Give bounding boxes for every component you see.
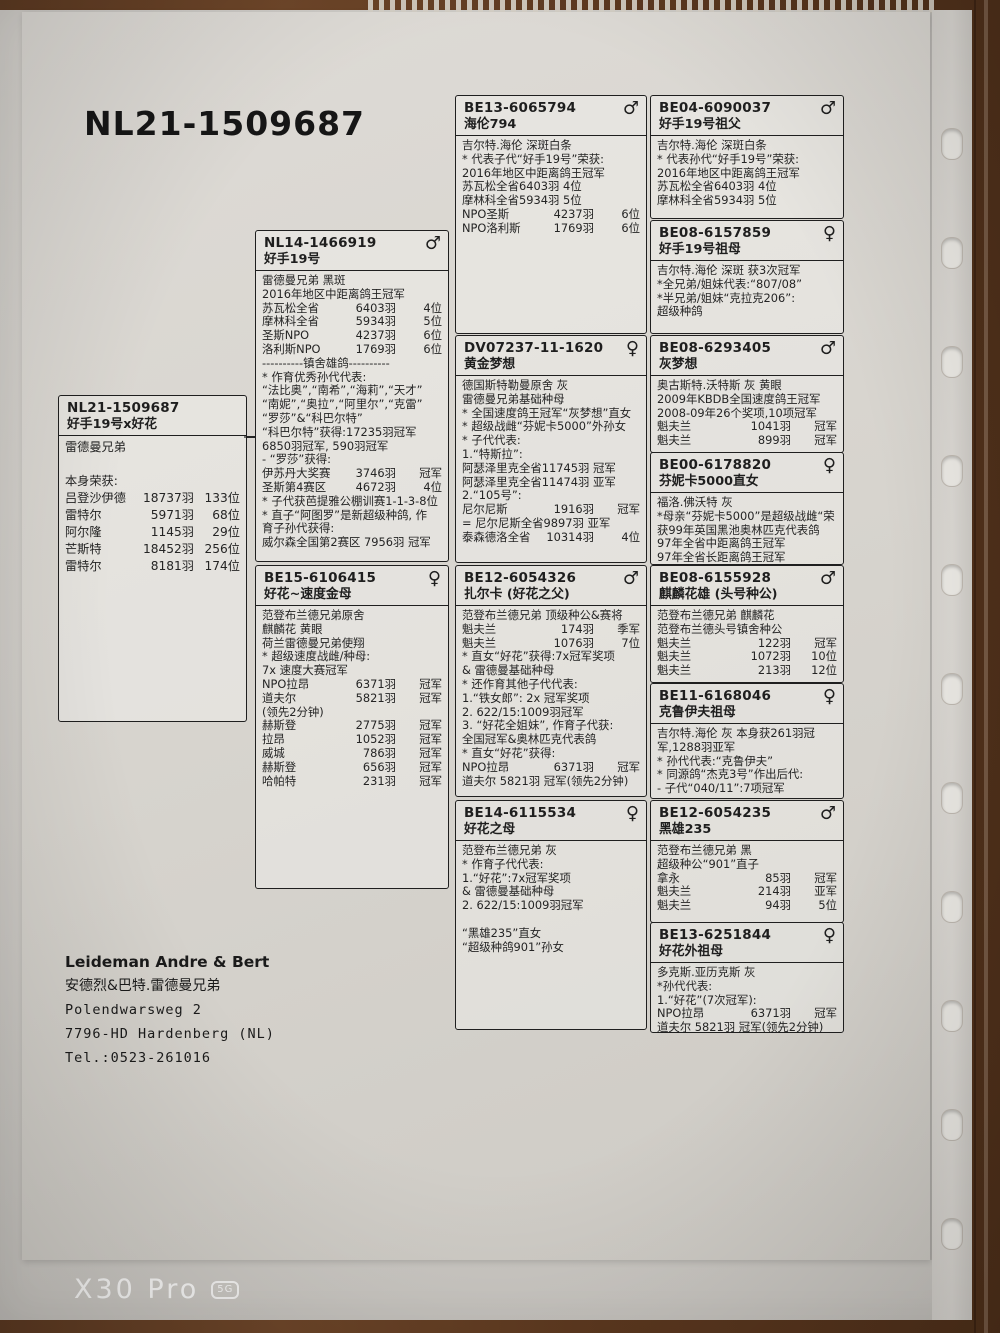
text-line: “黑雄235”直女 (462, 927, 640, 941)
text-line: 摩林科全省5934羽 5位 (462, 194, 640, 208)
birds-count: 1769羽 (336, 343, 396, 357)
male-icon: ♂ (820, 340, 836, 358)
ring-number: BE11-6168046 (659, 688, 835, 704)
placing: 6位 (396, 329, 442, 343)
ring-number: BE04-6090037 (659, 100, 835, 116)
text-line: 2016年地区中距离鸽王冠军 (262, 288, 442, 302)
result-row: 伊苏丹大奖赛3746羽冠军 (262, 467, 442, 481)
birds-count: 85羽 (731, 872, 791, 886)
result-row: 魁夫兰899羽冠军 (657, 434, 837, 448)
male-icon: ♂ (820, 805, 836, 823)
result-row: NPO拉昂6371羽冠军 (462, 761, 640, 775)
result-row: 魁夫兰1041羽冠军 (657, 420, 837, 434)
male-icon: ♂ (623, 100, 639, 118)
race-name: 拉昂 (262, 733, 336, 747)
birds-count: 6371羽 (731, 1007, 791, 1021)
birds-count: 4237羽 (534, 208, 594, 222)
result-row: 魁夫兰122羽冠军 (657, 637, 837, 651)
race-name: 伊苏丹大奖赛 (262, 467, 336, 481)
owner-city: 7796-HD Hardenberg (NL) (65, 1022, 275, 1046)
text-line: * 子代代表: (462, 434, 640, 448)
result-row: 赫斯登2775羽冠军 (262, 719, 442, 733)
text-line: 道夫尔 5821羽 冠军(领先2分钟) (657, 1021, 837, 1033)
pigeon-name: 好手19号 (264, 252, 440, 267)
ring-number: BE12-6054326 (464, 570, 638, 586)
text-line: 阿瑟泽里克全省11474羽 亚军 (462, 476, 640, 490)
text-line: 育子孙代获得: (262, 522, 442, 536)
placing: 冠军 (396, 467, 442, 481)
binder-hole (941, 128, 963, 160)
result-row: 道夫尔5821羽冠军 (262, 692, 442, 706)
result-row: 洛利斯NPO1769羽6位 (262, 343, 442, 357)
birds-count: 1916羽 (534, 503, 594, 517)
text-line: * 孙代代表:“克鲁伊夫” (657, 755, 837, 769)
text-line: 德国斯特勒曼原舍 灰 (462, 379, 640, 393)
ring-number: BE13-6251844 (659, 927, 835, 943)
box-body: 奥古斯特.沃特斯 灰 黄眼2009年KBDB全国速度鸽王冠军2008-09年26… (651, 376, 843, 450)
placing: 冠军 (791, 872, 837, 886)
text-line: 2016年地区中距离鸽王冠军 (462, 167, 640, 181)
result-row: 拉昂1052羽冠军 (262, 733, 442, 747)
placing: 冠军 (594, 761, 640, 775)
birds-count: 4672羽 (336, 481, 396, 495)
pigeon-name: 好手19号x好花 (67, 417, 238, 432)
owner-block: Leideman Andre & Bert 安德烈&巴特.雷德曼兄弟 Polen… (65, 950, 275, 1070)
birds-count: 10314羽 (534, 531, 594, 545)
race-name: 拿永 (657, 872, 731, 886)
text-line: *孙代代表: (657, 980, 837, 994)
text-line: 97年全省长距离鸽王冠军 (657, 551, 837, 565)
text-line: 3. “好花全姐妹”, 作育子代获: (462, 719, 640, 733)
text-line: 吉尔特.海伦 深斑 获3次冠军 (657, 264, 837, 278)
pedigree-box-BE12-6054235: BE12-6054235黑雄235♂范登布兰德兄弟 黑超级种公“901”直子拿永… (650, 800, 844, 923)
birds-count: 174羽 (534, 623, 594, 637)
text-line: 2008-09年26个奖项,10项冠军 (657, 407, 837, 421)
birds-count: 3746羽 (336, 467, 396, 481)
result-row: 魁夫兰214羽亚军 (657, 885, 837, 899)
race-name: 魁夫兰 (657, 434, 731, 448)
placing: 冠军 (396, 733, 442, 747)
placing: 亚军 (791, 885, 837, 899)
text-line: - “罗莎”获得: (262, 453, 442, 467)
text-line: 范登布兰德头号镇舍种公 (657, 623, 837, 637)
race-name: 芒斯特 (65, 541, 134, 558)
race-name: 赫斯登 (262, 719, 336, 733)
pigeon-name: 扎尔卡 (好花之父) (464, 587, 638, 602)
box-body: 福洛.佛沃特 灰*母亲“芬妮卡5000”是超级战雌“荣获99年英国黑池奥林匹克代… (651, 493, 843, 565)
result-row: NPO拉昂6371羽冠军 (262, 678, 442, 692)
race-name: 圣斯第4赛区 (262, 481, 336, 495)
sleeve-edge-highlight (984, 0, 988, 1333)
text-line (462, 913, 640, 927)
text-line: * 还作育其他子代代表: (462, 678, 640, 692)
text-line: 超级种鸽 (657, 305, 837, 319)
pigeon-name: 黑雄235 (659, 822, 835, 837)
box-body: 雷德曼兄弟 黑斑2016年地区中距离鸽王冠军苏瓦松全省6403羽4位摩林科全省5… (256, 271, 448, 552)
placing: 季军 (594, 623, 640, 637)
placing: 冠军 (791, 420, 837, 434)
text-line: 1.“特斯拉”: (462, 448, 640, 462)
birds-count: 5821羽 (336, 692, 396, 706)
birds-count: 4237羽 (336, 329, 396, 343)
box-body: 范登布兰德兄弟 顶级种公&赛将魁夫兰174羽季军魁夫兰1076羽7位* 直女“好… (456, 606, 646, 790)
placing: 7位 (594, 637, 640, 651)
sleeve-edge-groove (974, 0, 976, 1333)
pigeon-name: 好花外祖母 (659, 944, 835, 959)
text-line: = 尼尔尼斯全省9897羽 亚军 (462, 517, 640, 531)
birds-count: 213羽 (731, 664, 791, 678)
race-name: 魁夫兰 (657, 664, 731, 678)
birds-count: 1076羽 (534, 637, 594, 651)
text-line: 道夫尔 5821羽 冠军(领先2分钟) (462, 775, 640, 789)
box-body: 吉尔特.海伦 深斑白条* 代表子代“好手19号”荣获:2016年地区中距离鸽王冠… (456, 136, 646, 238)
text-line: 1.“好花”:7x冠军奖项 (462, 872, 640, 886)
placing: 冠军 (791, 1007, 837, 1021)
text-line: 雷德曼兄弟 (65, 439, 240, 456)
placing: 5位 (791, 899, 837, 913)
text-line: 范登布兰德兄弟 黑 (657, 844, 837, 858)
ring-number: BE15-6106415 (264, 570, 440, 586)
text-line: & 雷德曼基础种母 (462, 885, 640, 899)
result-row: NPO洛利斯1769羽6位 (462, 222, 640, 236)
placing: 冠军 (396, 747, 442, 761)
pedigree-box-BE12-6054326: BE12-6054326扎尔卡 (好花之父)♂范登布兰德兄弟 顶级种公&赛将魁夫… (455, 565, 647, 797)
text-line: 阿瑟泽里克全省11745羽 冠军 (462, 462, 640, 476)
text-line: *半兄弟/姐妹“克拉克206”: (657, 292, 837, 306)
text-line: 雷德曼兄弟基础种母 (462, 393, 640, 407)
pedigree-box-DV07237-11-1620: DV07237-11-1620黄金梦想♀德国斯特勒曼原舍 灰雷德曼兄弟基础种母*… (455, 335, 647, 563)
text-line: * 超级战雌“芬妮卡5000”外孙女 (462, 420, 640, 434)
text-line: “罗莎”&“科巴尔特” (262, 412, 442, 426)
text-line: “南妮”,“奥拉”,“阿里尔”,“克雷” (262, 398, 442, 412)
text-line: * 代表孙代“好手19号”荣获: (657, 153, 837, 167)
pedigree-box-NL14-1466919: NL14-1466919好手19号♂雷德曼兄弟 黑斑2016年地区中距离鸽王冠军… (255, 230, 449, 562)
placing: 4位 (594, 531, 640, 545)
ring-number: BE08-6293405 (659, 340, 835, 356)
result-row: 苏瓦松全省6403羽4位 (262, 302, 442, 316)
placing: 256位 (194, 541, 240, 558)
result-row: NPO圣斯4237羽6位 (462, 208, 640, 222)
text-line: 吉尔特.海伦 深斑白条 (462, 139, 640, 153)
ring-number: BE08-6157859 (659, 225, 835, 241)
placing: 6位 (396, 343, 442, 357)
race-name: 赫斯登 (262, 761, 336, 775)
box-body: 范登布兰德兄弟 黑超级种公“901”直子拿永85羽冠军魁夫兰214羽亚军魁夫兰9… (651, 841, 843, 915)
placing: 4位 (396, 481, 442, 495)
result-row: 魁夫兰1076羽7位 (462, 637, 640, 651)
female-icon: ♀ (823, 225, 836, 243)
text-line: 全国冠军&奥林匹克代表鸽 (462, 733, 640, 747)
pigeon-name: 好花之母 (464, 822, 638, 837)
result-row: 雷特尔8181羽174位 (65, 558, 240, 575)
race-name: 阿尔隆 (65, 524, 134, 541)
box-header: NL21-1509687好手19号x好花 (59, 396, 246, 436)
text-line: * 超级速度战雌/种母: (262, 650, 442, 664)
race-name: NPO洛利斯 (462, 222, 534, 236)
race-name: 洛利斯NPO (262, 343, 336, 357)
box-header: BE08-6157859好手19号祖母♀ (651, 221, 843, 261)
female-icon: ♀ (626, 340, 639, 358)
birds-count: 18452羽 (134, 541, 194, 558)
placing: 6位 (594, 208, 640, 222)
result-row: 吕登沙伊德18737羽133位 (65, 490, 240, 507)
text-line: * 同源鸽“杰克3号”作出后代: (657, 768, 837, 782)
placing: 冠军 (594, 503, 640, 517)
text-line: 奥古斯特.沃特斯 灰 黄眼 (657, 379, 837, 393)
pedigree-box-BE04-6090037: BE04-6090037好手19号祖父♂吉尔特.海伦 深斑白条* 代表孙代“好手… (650, 95, 844, 219)
ring-number: NL21-1509687 (67, 400, 238, 416)
race-name: 道夫尔 (262, 692, 336, 706)
text-line: * 子代获芭提雅公棚训赛1-1-3-8位 (262, 495, 442, 509)
placing: 冠军 (791, 434, 837, 448)
ring-number: BE12-6054235 (659, 805, 835, 821)
box-header: BE00-6178820芬妮卡5000直女♀ (651, 453, 843, 493)
text-line: 本身荣获: (65, 473, 240, 490)
male-icon: ♂ (820, 100, 836, 118)
box-header: BE11-6168046克鲁伊夫祖母♀ (651, 684, 843, 724)
box-body: 吉尔特.海伦 深斑白条* 代表孙代“好手19号”荣获:2016年地区中距离鸽王冠… (651, 136, 843, 210)
pedigree-box-BE08-6293405: BE08-6293405灰梦想♂奥古斯特.沃特斯 灰 黄眼2009年KBDB全国… (650, 335, 844, 453)
box-header: BE08-6155928麒麟花雄 (头号种公)♂ (651, 566, 843, 606)
result-row: 魁夫兰1072羽10位 (657, 650, 837, 664)
box-body: 范登布兰德兄弟 麒麟花范登布兰德头号镇舍种公魁夫兰122羽冠军魁夫兰1072羽1… (651, 606, 843, 680)
text-line: 2016年地区中距离鸽王冠军 (657, 167, 837, 181)
pigeon-name: 灰梦想 (659, 357, 835, 372)
placing: 冠军 (396, 678, 442, 692)
text-line: (领先2分钟) (262, 706, 442, 720)
box-header: BE13-6065794海伦794♂ (456, 96, 646, 136)
box-body: 雷德曼兄弟 本身荣获:吕登沙伊德18737羽133位雷特尔5971羽68位阿尔隆… (59, 436, 246, 577)
birds-count: 1041羽 (731, 420, 791, 434)
text-line: * 作育子代代表: (462, 858, 640, 872)
male-icon: ♂ (820, 570, 836, 588)
result-row: 摩林科全省5934羽5位 (262, 315, 442, 329)
paper: NL21-1509687 Leideman Andre & Bert 安德烈&巴… (22, 12, 930, 1260)
text-line: 范登布兰德兄弟 顶级种公&赛将 (462, 609, 640, 623)
punch-strip (932, 10, 972, 1320)
ring-number: NL14-1466919 (264, 235, 440, 251)
birds-count: 2775羽 (336, 719, 396, 733)
pedigree-box-BE08-6157859: BE08-6157859好手19号祖母♀吉尔特.海伦 深斑 获3次冠军*全兄弟/… (650, 220, 844, 334)
female-icon: ♀ (626, 805, 639, 823)
box-body: 吉尔特.海伦 灰 本身获261羽冠军,1288羽亚军* 孙代代表:“克鲁伊夫”*… (651, 724, 843, 798)
birds-count: 94羽 (731, 899, 791, 913)
ring-number: DV07237-11-1620 (464, 340, 638, 356)
result-row: 尼尔尼斯1916羽冠军 (462, 503, 640, 517)
result-row: 威城786羽冠军 (262, 747, 442, 761)
result-row: 圣斯第4赛区4672羽4位 (262, 481, 442, 495)
race-name: 尼尔尼斯 (462, 503, 534, 517)
text-line (65, 456, 240, 473)
birds-count: 122羽 (731, 637, 791, 651)
text-line: ----------镇舍雄鸽---------- (262, 357, 442, 371)
male-icon: ♂ (425, 235, 441, 253)
text-line: 97年全省中距离鸽王冠军 (657, 537, 837, 551)
text-line: “超级种鸽901”孙女 (462, 941, 640, 955)
result-row: 拿永85羽冠军 (657, 872, 837, 886)
pigeon-name: 克鲁伊夫祖母 (659, 705, 835, 720)
result-row: 雷特尔5971羽68位 (65, 507, 240, 524)
female-icon: ♀ (823, 927, 836, 945)
text-line: 摩林科全省5934羽 5位 (657, 194, 837, 208)
race-name: 魁夫兰 (657, 637, 731, 651)
race-name: 魁夫兰 (657, 899, 731, 913)
race-name: NPO圣斯 (462, 208, 534, 222)
birds-count: 6403羽 (336, 302, 396, 316)
text-line: 麒麟花 黄眼 (262, 623, 442, 637)
binder-hole (941, 237, 963, 269)
race-name: NPO拉昂 (262, 678, 336, 692)
binder-hole (941, 1109, 963, 1141)
placing: 133位 (194, 490, 240, 507)
race-name: 魁夫兰 (462, 623, 534, 637)
box-body: 范登布兰德兄弟原舍麒麟花 黄眼荷兰雷德曼兄弟使翔* 超级速度战雌/种母:7x 速… (256, 606, 448, 790)
race-name: 哈帕特 (262, 775, 336, 789)
race-name: 吕登沙伊德 (65, 490, 134, 507)
text-line: 获99年英国黑池奥林匹克代表鸽 (657, 524, 837, 538)
watermark-model: X30 Pro (74, 1274, 199, 1305)
placing: 29位 (194, 524, 240, 541)
ring-number: BE00-6178820 (659, 457, 835, 473)
pigeon-name: 芬妮卡5000直女 (659, 474, 835, 489)
text-line: 1.“好花”(7次冠军): (657, 994, 837, 1008)
text-line: 2009年KBDB全国速度鸽王冠军 (657, 393, 837, 407)
placing: 冠军 (396, 775, 442, 789)
pedigree-box-BE14-6115534: BE14-6115534好花之母♀范登布兰德兄弟 灰* 作育子代代表:1.“好花… (455, 800, 647, 1030)
box-header: BE12-6054235黑雄235♂ (651, 801, 843, 841)
text-line: 2.“105号”: (462, 489, 640, 503)
birds-count: 5934羽 (336, 315, 396, 329)
box-body: 德国斯特勒曼原舍 灰雷德曼兄弟基础种母* 全国速度鸽王冠军“灰梦想”直女* 超级… (456, 376, 646, 547)
pigeon-name: 黄金梦想 (464, 357, 638, 372)
pigeon-name: 好手19号祖父 (659, 117, 835, 132)
race-name: 雷特尔 (65, 507, 134, 524)
ring-number: BE13-6065794 (464, 100, 638, 116)
text-line: 荷兰雷德曼兄弟使翔 (262, 637, 442, 651)
result-row: 魁夫兰174羽季军 (462, 623, 640, 637)
pedigree-box-BE00-6178820: BE00-6178820芬妮卡5000直女♀福洛.佛沃特 灰*母亲“芬妮卡500… (650, 452, 844, 565)
binder-hole (941, 564, 963, 596)
pigeon-name: 好手19号祖母 (659, 242, 835, 257)
binder-hole (941, 673, 963, 705)
text-line: * 代表子代“好手19号”荣获: (462, 153, 640, 167)
pedigree-box-NL21-1509687: NL21-1509687好手19号x好花雷德曼兄弟 本身荣获:吕登沙伊德1873… (58, 395, 247, 722)
box-header: BE14-6115534好花之母♀ (456, 801, 646, 841)
text-line: 雷德曼兄弟 黑斑 (262, 274, 442, 288)
text-line: * 直女“好花”获得:7x冠军奖项 (462, 650, 640, 664)
female-icon: ♀ (823, 688, 836, 706)
pigeon-name: 好花~速度金母 (264, 587, 440, 602)
text-line: 苏瓦松全省6403羽 4位 (657, 180, 837, 194)
placing: 冠军 (791, 637, 837, 651)
binder-hole (941, 1000, 963, 1032)
race-name: NPO拉昂 (657, 1007, 731, 1021)
placing: 冠军 (396, 692, 442, 706)
birds-count: 18737羽 (134, 490, 194, 507)
binder-hole (941, 782, 963, 814)
placing: 冠军 (396, 719, 442, 733)
pedigree-box-BE08-6155928: BE08-6155928麒麟花雄 (头号种公)♂范登布兰德兄弟 麒麟花范登布兰德… (650, 565, 844, 683)
text-line: 苏瓦松全省6403羽 4位 (462, 180, 640, 194)
box-header: BE08-6293405灰梦想♂ (651, 336, 843, 376)
race-name: 魁夫兰 (657, 650, 731, 664)
result-row: 阿尔隆1145羽29位 (65, 524, 240, 541)
result-row: 魁夫兰213羽12位 (657, 664, 837, 678)
page-title: NL21-1509687 (84, 104, 365, 143)
pedigree-box-BE11-6168046: BE11-6168046克鲁伊夫祖母♀吉尔特.海伦 灰 本身获261羽冠军,12… (650, 683, 844, 799)
box-header: NL14-1466919好手19号♂ (256, 231, 448, 271)
owner-tel: Tel.:0523-261016 (65, 1046, 275, 1070)
birds-count: 6371羽 (534, 761, 594, 775)
text-line: * 直子“阿图罗”是新超级种鸽, 作 (262, 509, 442, 523)
pedigree-box-BE13-6065794: BE13-6065794海伦794♂吉尔特.海伦 深斑白条* 代表子代“好手19… (455, 95, 647, 334)
text-line: 6850羽冠军, 590羽冠军 (262, 440, 442, 454)
pedigree-box-BE15-6106415: BE15-6106415好花~速度金母♀范登布兰德兄弟原舍麒麟花 黄眼荷兰雷德曼… (255, 565, 449, 889)
binder-hole (941, 455, 963, 487)
text-line: 威尔森全国第2赛区 7956羽 冠军 (262, 536, 442, 550)
text-line: 超级种公“901”直子 (657, 858, 837, 872)
pigeon-name: 麒麟花雄 (头号种公) (659, 587, 835, 602)
placing: 6位 (594, 222, 640, 236)
placing: 冠军 (396, 761, 442, 775)
placing: 4位 (396, 302, 442, 316)
birds-count: 1052羽 (336, 733, 396, 747)
birds-count: 1769羽 (534, 222, 594, 236)
box-header: BE13-6251844好花外祖母♀ (651, 923, 843, 963)
box-body: 吉尔特.海伦 深斑 获3次冠军*全兄弟/姐妹代表:“807/08”*半兄弟/姐妹… (651, 261, 843, 321)
result-row: 圣斯NPO4237羽6位 (262, 329, 442, 343)
text-line: 吉尔特.海伦 灰 本身获261羽冠 (657, 727, 837, 741)
binder-hole (941, 1218, 963, 1250)
text-line: * 全国速度鸽王冠军“灰梦想”直女 (462, 407, 640, 421)
birds-count: 1072羽 (731, 650, 791, 664)
text-line: 范登布兰德兄弟原舍 (262, 609, 442, 623)
female-icon: ♀ (823, 457, 836, 475)
text-line: 范登布兰德兄弟 麒麟花 (657, 609, 837, 623)
birds-count: 231羽 (336, 775, 396, 789)
race-name: 魁夫兰 (462, 637, 534, 651)
birds-count: 656羽 (336, 761, 396, 775)
female-icon: ♀ (428, 570, 441, 588)
birds-count: 5971羽 (134, 507, 194, 524)
ring-number: BE08-6155928 (659, 570, 835, 586)
birds-count: 8181羽 (134, 558, 194, 575)
box-header: DV07237-11-1620黄金梦想♀ (456, 336, 646, 376)
text-line: “法比奥”,“南希”,“海莉”,“天才” (262, 384, 442, 398)
text-line: *母亲“芬妮卡5000”是超级战雌“荣 (657, 510, 837, 524)
text-line: 7x 速度大赛冠军 (262, 664, 442, 678)
result-row: 哈帕特231羽冠军 (262, 775, 442, 789)
text-line: *全兄弟/姐妹代表:“807/08” (657, 278, 837, 292)
pigeon-name: 海伦794 (464, 117, 638, 132)
text-line: “科巴尔特”获得:17235羽冠军 (262, 426, 442, 440)
race-name: 魁夫兰 (657, 885, 731, 899)
birds-count: 214羽 (731, 885, 791, 899)
owner-street: Polendwarsweg 2 (65, 998, 275, 1022)
owner-name: Leideman Andre & Bert (65, 950, 275, 974)
race-name: 摩林科全省 (262, 315, 336, 329)
text-line: - 子代“040/11”:7项冠军 (657, 782, 837, 796)
text-line: 2. 622/15:1009羽冠军 (462, 706, 640, 720)
owner-name-chinese: 安德烈&巴特.雷德曼兄弟 (65, 974, 275, 998)
text-line: 多克斯.亚历克斯 灰 (657, 966, 837, 980)
text-line: 1.“铁女郎”: 2x 冠军奖项 (462, 692, 640, 706)
birds-count: 786羽 (336, 747, 396, 761)
birds-count: 1145羽 (134, 524, 194, 541)
text-line: 福洛.佛沃特 灰 (657, 496, 837, 510)
text-line: 军,1288羽亚军 (657, 741, 837, 755)
box-header: BE15-6106415好花~速度金母♀ (256, 566, 448, 606)
